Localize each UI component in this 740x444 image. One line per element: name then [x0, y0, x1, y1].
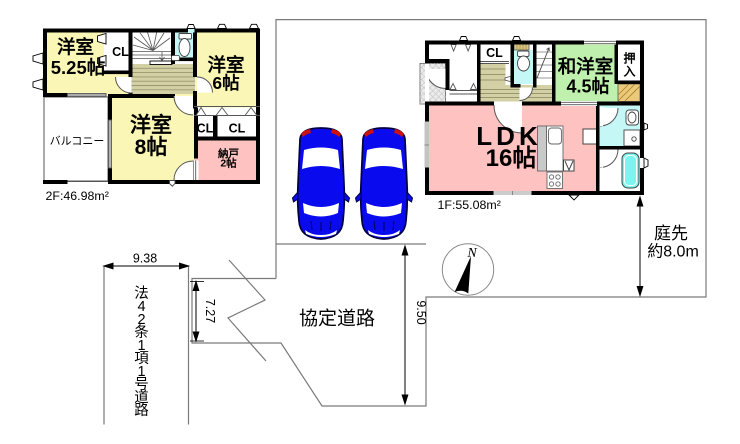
svg-text:1F:55.08m²: 1F:55.08m² — [438, 198, 501, 212]
svg-text:2F:46.98m²: 2F:46.98m² — [46, 189, 109, 203]
svg-text:5.25帖: 5.25帖 — [51, 57, 106, 78]
svg-text:6帖: 6帖 — [212, 73, 240, 93]
svg-text:協定道路: 協定道路 — [299, 308, 375, 330]
svg-text:押: 押 — [623, 51, 635, 66]
svg-text:洋室: 洋室 — [57, 37, 94, 58]
svg-text:9.38: 9.38 — [133, 252, 157, 266]
svg-text:入: 入 — [623, 65, 635, 79]
svg-text:CL: CL — [229, 122, 246, 136]
svg-text:CL: CL — [112, 45, 129, 59]
svg-text:和洋室: 和洋室 — [558, 56, 614, 77]
svg-text:2帖: 2帖 — [220, 157, 237, 170]
svg-text:4.5帖: 4.5帖 — [566, 76, 609, 97]
svg-text:洋室: 洋室 — [130, 113, 172, 137]
svg-text:約8.0m: 約8.0m — [647, 243, 699, 261]
svg-text:バルコニー: バルコニー — [50, 135, 105, 148]
svg-text:CL: CL — [486, 46, 503, 60]
svg-text:9.50: 9.50 — [414, 300, 428, 324]
svg-text:8帖: 8帖 — [135, 136, 168, 159]
svg-text:7.27: 7.27 — [203, 299, 217, 323]
svg-text:庭先: 庭先 — [654, 224, 688, 243]
svg-text:N: N — [466, 246, 477, 261]
svg-text:16帖: 16帖 — [486, 145, 537, 172]
svg-text:CL: CL — [197, 122, 214, 136]
